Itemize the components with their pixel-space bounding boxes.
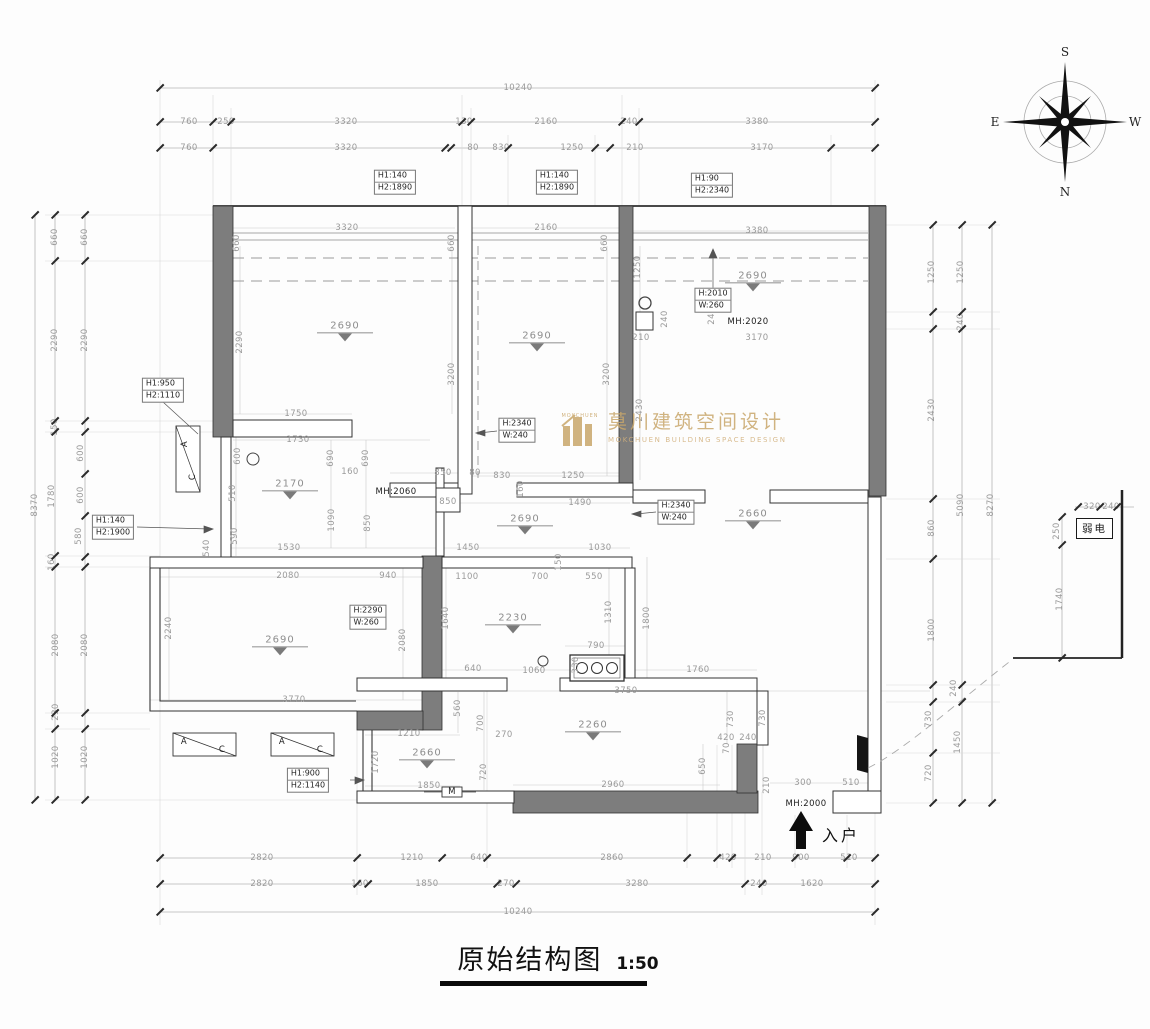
ceiling-height-mark: 2660 (725, 508, 781, 529)
watermark-en-label: MOKCHUEN BUILDING SPACE DESIGN (608, 436, 787, 444)
dimension-label: 830 (493, 471, 510, 481)
dimension-label: 1800 (642, 606, 652, 629)
dim-tick (827, 144, 835, 152)
dimension-label: 80 (469, 468, 481, 478)
dimension-label: 720 (924, 764, 934, 781)
dimension-label: 210 (632, 333, 649, 343)
title-block: 原始结构图 1:50 (438, 938, 678, 986)
dim-tick (81, 563, 89, 571)
watermark-cn-label: 莫川建筑空间设计 (608, 412, 787, 433)
dimension-label: 1850 (415, 879, 438, 889)
dim-tick (871, 908, 879, 916)
entrance-label: 入户 (822, 822, 860, 846)
dimension-label: 540 (202, 539, 212, 556)
dim-tick (958, 698, 966, 706)
dim-tick (81, 470, 89, 478)
dimension-label: 730 (758, 709, 768, 726)
dimension-label: 700 (531, 572, 548, 582)
dim-tick (958, 681, 966, 689)
dimension-label: 510 (228, 484, 238, 501)
dimension-label: 10240 (503, 83, 532, 93)
annotation-line: H2:1890 (375, 183, 415, 194)
dim-tick (353, 854, 361, 862)
height-annotation-box: H:2010W:260 (694, 288, 731, 313)
dim-tick (1058, 654, 1066, 662)
dimension-label: 3380 (745, 226, 768, 236)
dim-tick (31, 796, 39, 804)
dim-tick (81, 725, 89, 733)
dimension-label: 240 (660, 310, 670, 327)
dimension-label: 600 (76, 444, 86, 461)
dimension-label: 210 (754, 853, 771, 863)
dimension-label: 1250 (560, 143, 583, 153)
dim-tick (81, 211, 89, 219)
dim-tick (156, 854, 164, 862)
annotation-line: H2:1110 (143, 391, 183, 402)
dim-tick (988, 221, 996, 229)
annotation-line: H2:1140 (288, 781, 328, 792)
dimension-label: 690 (326, 449, 336, 466)
dimension-label: 660 (447, 234, 457, 251)
dimension-label: 3170 (745, 333, 768, 343)
annotation-line: W:260 (695, 301, 730, 312)
annotation-line: H2:1900 (93, 528, 133, 539)
dim-tick (741, 880, 749, 888)
dim-tick (929, 221, 937, 229)
dimension-label: 3200 (447, 362, 457, 385)
dimension-label: 150 (554, 553, 564, 570)
dimension-label: 1250 (956, 260, 966, 283)
dimension-label: 2860 (600, 853, 623, 863)
dimension-label: MH:2060 (375, 487, 416, 497)
annotation-line: H1:140 (93, 516, 133, 528)
dimension-label: 3320 (335, 223, 358, 233)
dimension-label: 2290 (80, 328, 90, 351)
dimension-label: 660 (232, 234, 242, 251)
dimension-label: M (448, 787, 456, 797)
floor-plan-canvas: 1024076025033201302160240338076033208083… (0, 0, 1150, 1029)
dimension-label: 1250 (633, 255, 643, 278)
dim-tick (156, 880, 164, 888)
compass-n-label: N (1060, 185, 1071, 199)
dimension-label: 2960 (601, 780, 624, 790)
dim-tick (51, 725, 59, 733)
dimension-label: 1020 (51, 745, 61, 768)
dim-tick (51, 796, 59, 804)
dim-tick (156, 908, 164, 916)
dim-tick (929, 681, 937, 689)
dimension-label: 1250 (561, 471, 584, 481)
dim-tick (871, 144, 879, 152)
ceiling-height-mark: 2170 (262, 478, 318, 499)
dim-tick (81, 709, 89, 717)
dimension-label: 790 (587, 641, 604, 651)
dimension-label: 660 (80, 228, 90, 245)
annotation-line: H1:140 (375, 171, 415, 183)
dimension-label: 1020 (80, 745, 90, 768)
dimension-label: C (219, 745, 225, 755)
dimension-label: 860 (927, 519, 937, 536)
dimension-label: 1750 (284, 409, 307, 419)
dimension-label: 10240 (503, 907, 532, 917)
dimension-label: 2290 (50, 328, 60, 351)
dim-tick (871, 880, 879, 888)
dim-tick (438, 854, 446, 862)
dimension-label: 2290 (235, 330, 245, 353)
dimension-label: 850 (434, 468, 451, 478)
dim-tick (1058, 541, 1066, 549)
dimension-label: 510 (842, 778, 859, 788)
dimension-label: 1620 (800, 879, 823, 889)
dimension-label: 1450 (953, 730, 963, 753)
ceiling-height-mark: 2690 (725, 270, 781, 291)
ceiling-height-mark: 2690 (509, 330, 565, 351)
dim-tick (31, 211, 39, 219)
annotation-line: W:260 (350, 618, 385, 629)
dimension-label: 3380 (745, 117, 768, 127)
annotation-line: H:2010 (695, 289, 730, 301)
annotation-line: H:2340 (499, 419, 534, 431)
height-annotation-box: H:2340W:240 (657, 500, 694, 525)
compass-s-label: S (1061, 45, 1069, 59)
dimension-label: 2160 (534, 223, 557, 233)
dimension-label: 3280 (625, 879, 648, 889)
dimension-label: 2080 (398, 628, 408, 651)
dimension-label: 210 (626, 143, 643, 153)
dimension-label: 2820 (250, 853, 273, 863)
dimension-label: 850 (439, 497, 456, 507)
annotation-line: H:2290 (350, 606, 385, 618)
dimension-label: 160 (516, 480, 526, 497)
ceiling-height-mark: 2690 (317, 320, 373, 341)
ceiling-height-value: 2690 (725, 270, 781, 281)
dimension-label: 1250 (927, 260, 937, 283)
ceiling-height-value: 2660 (399, 747, 455, 758)
dim-tick (81, 257, 89, 265)
dimension-label: 720 (479, 763, 489, 780)
dimension-label: 1060 (522, 666, 545, 676)
ceiling-height-value: 2690 (509, 330, 565, 341)
dimension-label: 1310 (604, 600, 614, 623)
annotation-line: W:240 (658, 513, 693, 524)
dimension-label: 2080 (80, 633, 90, 656)
height-annotation-box: H1:90H2:2340 (691, 173, 733, 198)
dim-tick (81, 553, 89, 561)
dimension-label: 730 (924, 710, 934, 727)
dimension-label: 1720 (371, 750, 381, 773)
dimension-label: 2160 (534, 117, 557, 127)
dimension-label: 850 (363, 514, 373, 531)
dimension-label: 1740 (1055, 587, 1065, 610)
compass-w-label: W (1129, 115, 1141, 129)
dim-tick (871, 84, 879, 92)
dimension-label: 580 (74, 527, 84, 544)
dimension-label: 590 (230, 527, 240, 544)
dimension-label: 270 (495, 730, 512, 740)
dimension-label: 1090 (327, 508, 337, 531)
dim-tick (929, 495, 937, 503)
dimension-label: 8270 (986, 493, 996, 516)
dimension-label: 1850 (417, 781, 440, 791)
ceiling-height-value: 2230 (485, 612, 541, 623)
dim-tick (81, 417, 89, 425)
title-underline (440, 981, 647, 986)
ceiling-height-value: 2170 (262, 478, 318, 489)
dimension-label: 80 (467, 143, 479, 153)
drawing-title: 原始结构图 (457, 938, 602, 977)
dimension-label: 760 (180, 117, 197, 127)
dimension-label: 210 (762, 776, 772, 793)
dimension-label: A (279, 737, 285, 747)
dimension-label: 70 (722, 742, 732, 754)
dimension-label: 660 (50, 228, 60, 245)
dimension-label: 1800 (927, 618, 937, 641)
ceiling-height-mark: 2230 (485, 612, 541, 633)
dimension-label: 2080 (276, 571, 299, 581)
dimension-label: 1030 (588, 543, 611, 553)
dim-tick (929, 799, 937, 807)
dimension-label: 1780 (47, 484, 57, 507)
dimension-label: 600 (76, 486, 86, 503)
dimension-label: A (180, 441, 190, 447)
dim-tick (958, 221, 966, 229)
dimension-label: 330 (571, 656, 581, 673)
dimension-label: 2820 (250, 879, 273, 889)
ceiling-height-value: 2660 (725, 508, 781, 519)
dim-tick (81, 428, 89, 436)
dim-tick (81, 512, 89, 520)
dim-tick (929, 555, 937, 563)
annotation-line: H1:900 (288, 769, 328, 781)
ceiling-height-value: 2690 (252, 634, 308, 645)
height-annotation-box: H1:140H2:1890 (536, 170, 578, 195)
dimension-label: 240 (739, 733, 756, 743)
dimension-label: 690 (361, 449, 371, 466)
dim-tick (929, 325, 937, 333)
dim-tick (156, 84, 164, 92)
dim-tick (209, 118, 217, 126)
dimension-label: 300 (794, 778, 811, 788)
dimension-label: A (181, 737, 187, 747)
dim-tick (1074, 503, 1082, 511)
dimension-label: 560 (453, 699, 463, 716)
dimension-label: 3200 (602, 362, 612, 385)
dimension-label: C (188, 474, 198, 480)
dimension-label: 1640 (441, 606, 451, 629)
compass-e-label: E (991, 115, 1000, 129)
dimension-label: 2240 (164, 616, 174, 639)
dimension-label: 5090 (956, 493, 966, 516)
height-annotation-box: H1:950H2:1110 (142, 378, 184, 403)
dim-tick (1058, 513, 1066, 521)
annotation-line: H1:90 (692, 174, 732, 186)
dimension-label: 940 (379, 571, 396, 581)
height-annotation-box: H1:140H2:1900 (92, 515, 134, 540)
dim-tick (606, 144, 614, 152)
dimension-label: 1490 (568, 498, 591, 508)
ceiling-height-mark: 2660 (399, 747, 455, 768)
ceiling-height-value: 2690 (317, 320, 373, 331)
dim-tick (871, 118, 879, 126)
annotation-line: H1:950 (143, 379, 183, 391)
annotation-line: H2:2340 (692, 186, 732, 197)
dimension-label: 660 (600, 234, 610, 251)
annotation-line: W:240 (499, 431, 534, 442)
dim-tick (51, 257, 59, 265)
annotation-line: H1:140 (537, 171, 577, 183)
height-annotation-box: H:2340W:240 (498, 418, 535, 443)
dim-tick (591, 144, 599, 152)
dimension-label: 1210 (397, 729, 420, 739)
dimension-label: 1530 (277, 543, 300, 553)
dimension-label: 3770 (282, 695, 305, 705)
dim-tick (683, 854, 691, 862)
dimension-label: 550 (585, 572, 602, 582)
dimension-label: MH:2020 (727, 317, 768, 327)
dimension-label: C (317, 745, 323, 755)
height-annotation-box: H:2290W:260 (349, 605, 386, 630)
ceiling-height-value: 2260 (565, 719, 621, 730)
dimension-label: 1450 (456, 543, 479, 553)
dimension-label: 600 (233, 447, 243, 464)
dimension-label: 700 (476, 714, 486, 731)
dimension-label: 2430 (927, 398, 937, 421)
dimension-label: 250 (1052, 522, 1062, 539)
dim-tick (156, 118, 164, 126)
watermark: MOKCHUEN 莫川建筑空间设计 MOKCHUEN BUILDING SPAC… (560, 412, 787, 444)
dimension-label: MH:2000 (785, 799, 826, 809)
height-annotation-box: H1:900H2:1140 (287, 768, 329, 793)
ceiling-height-mark: 2260 (565, 719, 621, 740)
dim-tick (51, 211, 59, 219)
label-layer: 1024076025033201302160240338076033208083… (0, 0, 1150, 1029)
annotation-line: H:2340 (658, 501, 693, 513)
dimension-label: 3750 (614, 686, 637, 696)
dim-tick (156, 144, 164, 152)
ceiling-height-mark: 2690 (497, 513, 553, 534)
dimension-label: 640 (464, 664, 481, 674)
dimension-label: 8370 (30, 493, 40, 516)
ceiling-height-mark: 2690 (252, 634, 308, 655)
dim-tick (929, 308, 937, 316)
dim-tick (988, 799, 996, 807)
annotation-line: H2:1890 (537, 183, 577, 194)
dimension-label: 3320 (334, 143, 357, 153)
dim-tick (929, 749, 937, 757)
dimension-label: 3320 (334, 117, 357, 127)
watermark-logo-icon: MOKCHUEN (560, 412, 600, 419)
dimension-label: 2080 (51, 633, 61, 656)
dimension-label: 1760 (686, 665, 709, 675)
dimension-label: 650 (698, 757, 708, 774)
dim-tick (209, 144, 217, 152)
dimension-label: 760 (180, 143, 197, 153)
dimension-label: 1210 (400, 853, 423, 863)
ceiling-height-value: 2690 (497, 513, 553, 524)
dimension-label: 1100 (455, 572, 478, 582)
dimension-label: 160 (341, 467, 358, 477)
drawing-scale: 1:50 (616, 954, 658, 974)
dimension-label: 730 (726, 710, 736, 727)
dim-tick (871, 854, 879, 862)
weak-current-box: 弱电 (1076, 518, 1113, 539)
dimension-label: 1730 (286, 435, 309, 445)
dim-tick (81, 796, 89, 804)
dim-tick (958, 799, 966, 807)
dim-tick (929, 698, 937, 706)
dimension-label: 3170 (750, 143, 773, 153)
height-annotation-box: H1:140H2:1890 (374, 170, 416, 195)
